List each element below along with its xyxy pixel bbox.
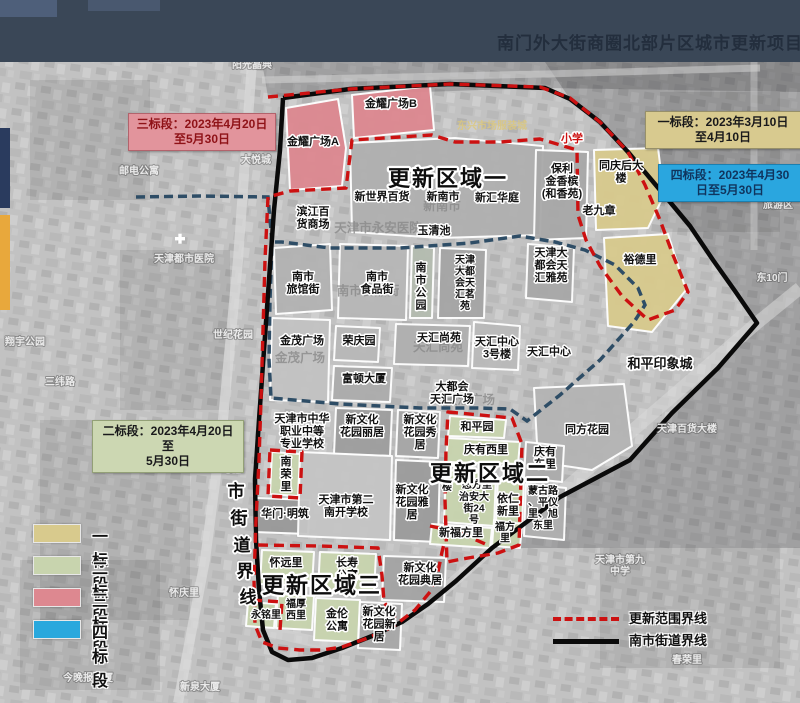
map-label: 金伦公寓	[325, 606, 349, 633]
street-boundary-name-char: 市	[228, 481, 245, 501]
map-label: 金耀广场A	[286, 134, 339, 148]
region-title-label: 更新区域二	[430, 461, 550, 486]
map-label: 福厚西里	[285, 597, 306, 622]
map-label: 庆有西里	[463, 442, 508, 456]
map-label: 新世界百货	[355, 189, 410, 203]
stage1-date-line2: 至4月10日	[650, 130, 796, 145]
map-label: 荣庆园	[342, 333, 376, 347]
map-label: 邮电公寓	[119, 164, 159, 177]
map-label: 天津市第二南开学校	[319, 492, 374, 519]
header-accent-left	[0, 0, 57, 17]
map-label: 新文化花园丽居	[340, 412, 384, 439]
header-bar: 南门外大街商圈北部片区城市更新项目	[0, 0, 800, 62]
stage4-date-line1: 四标段：2023年4月30	[663, 168, 797, 183]
map-label: 金茂广场	[274, 350, 325, 365]
stage2-color-swatch	[33, 556, 81, 575]
renewal-boundary-label: 更新范围界线	[629, 608, 707, 627]
legend-item-street-boundary: 南市街道界线	[553, 630, 783, 652]
map-label: 东兴市场服装城	[457, 119, 527, 132]
map-label: 新文化花园典居	[398, 560, 442, 587]
map-label: 怀庆里	[169, 586, 199, 599]
edge-accent-navy	[0, 128, 10, 208]
page-title: 南门外大街商圈北部片区城市更新项目	[497, 29, 797, 54]
map-label: 同方花园	[565, 422, 609, 436]
map-label: 依仁新里	[497, 491, 519, 518]
stage4-date-box: 四标段：2023年4月30 日至5月30日	[658, 164, 800, 202]
urban-renewal-map-page: 新南市天津市永安医院南市食品街金茂广场天汇尚苑天汇广场阳光晶典铜锣湾花园邮电公寓…	[0, 0, 800, 703]
legend-item-renewal-boundary: 更新范围界线	[553, 608, 783, 630]
map-label: 富顿大厦	[342, 371, 387, 385]
map-label: 翔宇公园	[4, 335, 45, 348]
map-label: 大悦城	[241, 153, 271, 166]
map-label: 东10门	[756, 271, 787, 284]
stage4-legend-label: 四标段	[92, 619, 108, 691]
street-boundary-name-char: 线	[240, 587, 257, 607]
map-label: 新南市	[427, 189, 460, 203]
map-label: 大都会天汇广场	[430, 379, 474, 406]
map-label: 怀远里	[270, 555, 303, 569]
satellite-map: 新南市天津市永安医院南市食品街金茂广场天汇尚苑天汇广场阳光晶典铜锣湾花园邮电公寓…	[0, 0, 800, 703]
map-label: 小学	[560, 131, 583, 145]
stage3-color-swatch	[33, 588, 81, 607]
map-label: 世纪花园	[213, 328, 253, 341]
stage1-date-box: 一标段：2023年3月10日 至4月10日	[645, 111, 800, 149]
street-boundary-name-char: 界	[237, 562, 254, 581]
map-label: 天津市永安医院	[334, 220, 422, 235]
map-label: 金茂广场	[279, 333, 324, 347]
map-label: 永铭里	[250, 608, 281, 621]
stage2-date-box: 二标段：2023年4月20日至 5月30日	[92, 420, 244, 473]
map-label: 和平园	[461, 419, 494, 433]
map-label: 和平印象城	[627, 356, 692, 371]
map-label: 玉清池	[418, 223, 451, 237]
map-label: 新泉大厦	[180, 680, 221, 693]
map-label: 天津大都会天汇雅苑	[534, 245, 569, 284]
map-label: 天津百货大楼	[657, 422, 717, 435]
street-boundary-name-char: 道	[234, 535, 251, 555]
boundary-line-legend: 更新范围界线 南市街道界线	[553, 608, 783, 652]
region-title-label: 更新区域三	[262, 573, 382, 598]
stage1-date-line1: 一标段：2023年3月10日	[650, 115, 796, 130]
map-label: 南市公园	[416, 260, 427, 312]
map-label: 滨江百货商场	[296, 204, 330, 231]
map-label: 天汇中心	[527, 344, 571, 358]
map-label: 南荣里	[280, 454, 293, 493]
map-label: 天津市中华职业中等专业学校	[275, 411, 330, 450]
street-boundary-label: 南市街道界线	[629, 630, 707, 649]
map-label: 天汇尚苑	[417, 330, 461, 344]
stage3-date-line2: 至5月30日	[133, 132, 271, 147]
map-label: 老九章	[582, 203, 616, 217]
stage1-color-swatch	[33, 524, 81, 543]
map-label: 裕德里	[623, 252, 657, 266]
stage4-color-swatch	[33, 620, 81, 639]
stage2-date-line1: 二标段：2023年4月20日至	[97, 424, 239, 454]
hospital-cross-icon	[178, 234, 181, 244]
map-label: 三纬路	[45, 375, 76, 388]
map-block	[352, 86, 434, 138]
stage3-date-line1: 三标段：2023年4月20日	[133, 117, 271, 132]
map-label: 金耀广场B	[364, 96, 417, 110]
street-boundary-name-char: 街	[230, 508, 248, 528]
renewal-boundary-sample	[553, 617, 619, 621]
stage3-date-box: 三标段：2023年4月20日 至5月30日	[128, 113, 276, 151]
map-label: 新福方里	[439, 525, 483, 539]
header-accent-left-2	[88, 0, 160, 11]
region-title-label: 更新区域一	[388, 166, 508, 191]
edge-accent-gold	[0, 215, 10, 310]
map-label: 华门·明筑	[261, 506, 309, 520]
map-label: 春荣里	[672, 653, 702, 666]
stage4-date-line2: 日至5月30日	[663, 183, 797, 198]
map-label: 新汇华庭	[475, 190, 519, 204]
map-label: 天津都市医院	[154, 252, 214, 265]
stage2-date-line2: 5月30日	[97, 454, 239, 469]
street-boundary-sample	[553, 639, 619, 644]
